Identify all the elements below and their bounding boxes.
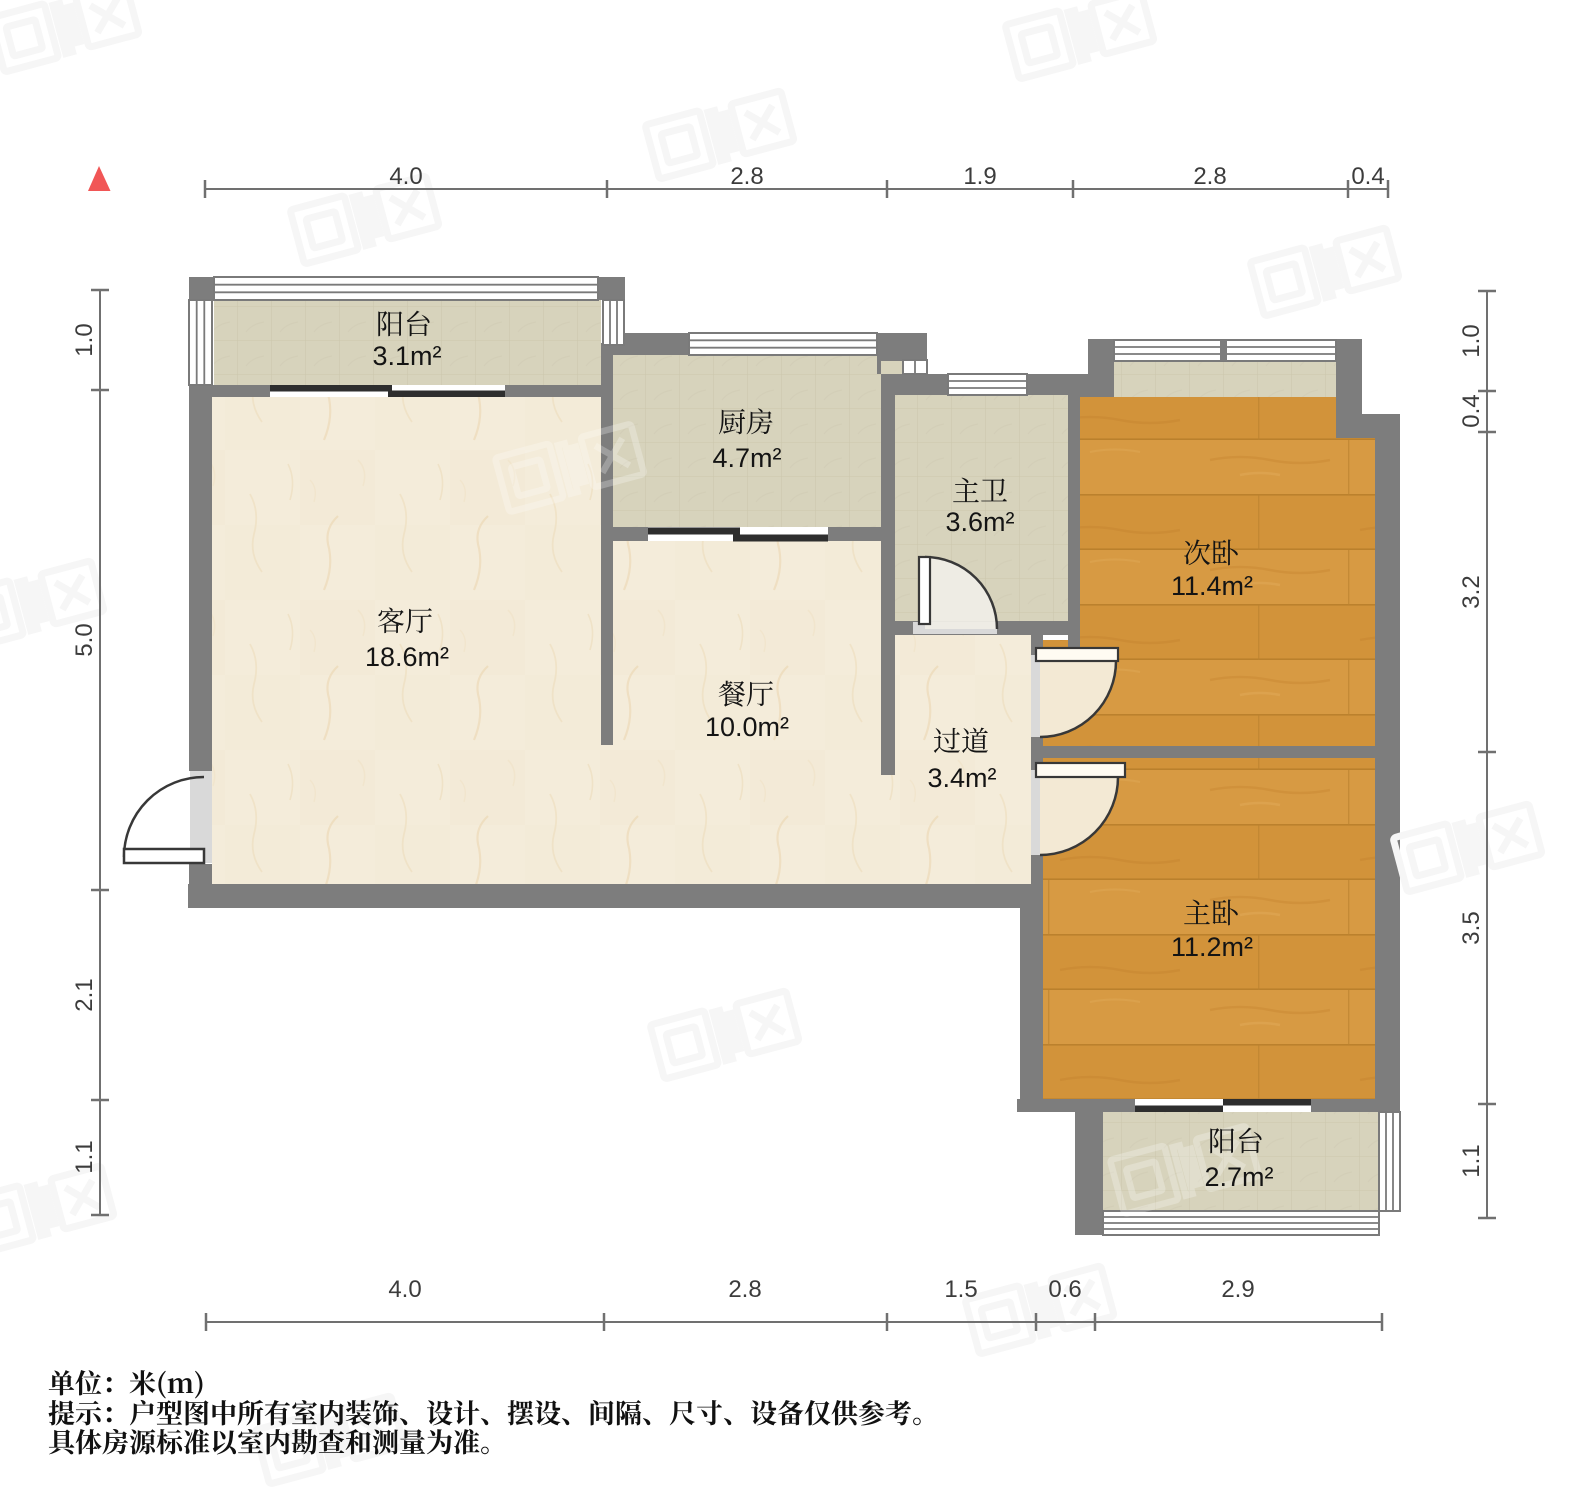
- svg-text:2.8: 2.8: [1193, 163, 1226, 190]
- svg-text:1.9: 1.9: [963, 163, 996, 190]
- svg-text:18.6m²: 18.6m²: [365, 642, 449, 672]
- svg-text:2.1: 2.1: [71, 978, 98, 1011]
- svg-text:0.6: 0.6: [1048, 1276, 1081, 1303]
- svg-text:4.0: 4.0: [388, 1276, 421, 1303]
- svg-text:1.0: 1.0: [1458, 324, 1485, 357]
- svg-text:3.4m²: 3.4m²: [927, 763, 996, 793]
- svg-text:0.4: 0.4: [1458, 394, 1485, 427]
- svg-text:3.1m²: 3.1m²: [372, 341, 441, 371]
- svg-text:1.1: 1.1: [1458, 1144, 1485, 1177]
- svg-text:11.2m²: 11.2m²: [1171, 932, 1253, 962]
- svg-text:3.2: 3.2: [1458, 575, 1485, 608]
- svg-text:3.5: 3.5: [1458, 911, 1485, 944]
- svg-text:4.7m²: 4.7m²: [712, 443, 781, 473]
- svg-text:2.8: 2.8: [728, 1276, 761, 1303]
- svg-text:1.0: 1.0: [71, 323, 98, 356]
- svg-text:3.6m²: 3.6m²: [945, 507, 1014, 537]
- svg-text:2.8: 2.8: [730, 163, 763, 190]
- svg-text:1.5: 1.5: [944, 1276, 977, 1303]
- svg-text:11.4m²: 11.4m²: [1171, 571, 1253, 601]
- svg-text:1.1: 1.1: [71, 1140, 98, 1173]
- svg-text:4.0: 4.0: [389, 163, 422, 190]
- svg-text:5.0: 5.0: [71, 623, 98, 656]
- svg-text:10.0m²: 10.0m²: [705, 712, 789, 742]
- svg-text:2.7m²: 2.7m²: [1204, 1162, 1273, 1192]
- svg-text:0.4: 0.4: [1351, 163, 1384, 190]
- svg-text:2.9: 2.9: [1221, 1276, 1254, 1303]
